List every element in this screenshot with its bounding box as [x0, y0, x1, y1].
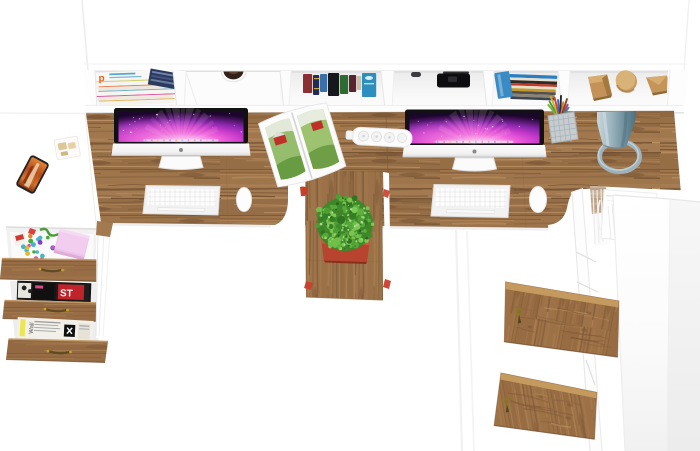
svg-text:p: p [98, 73, 104, 84]
svg-text:ST: ST [60, 288, 73, 299]
